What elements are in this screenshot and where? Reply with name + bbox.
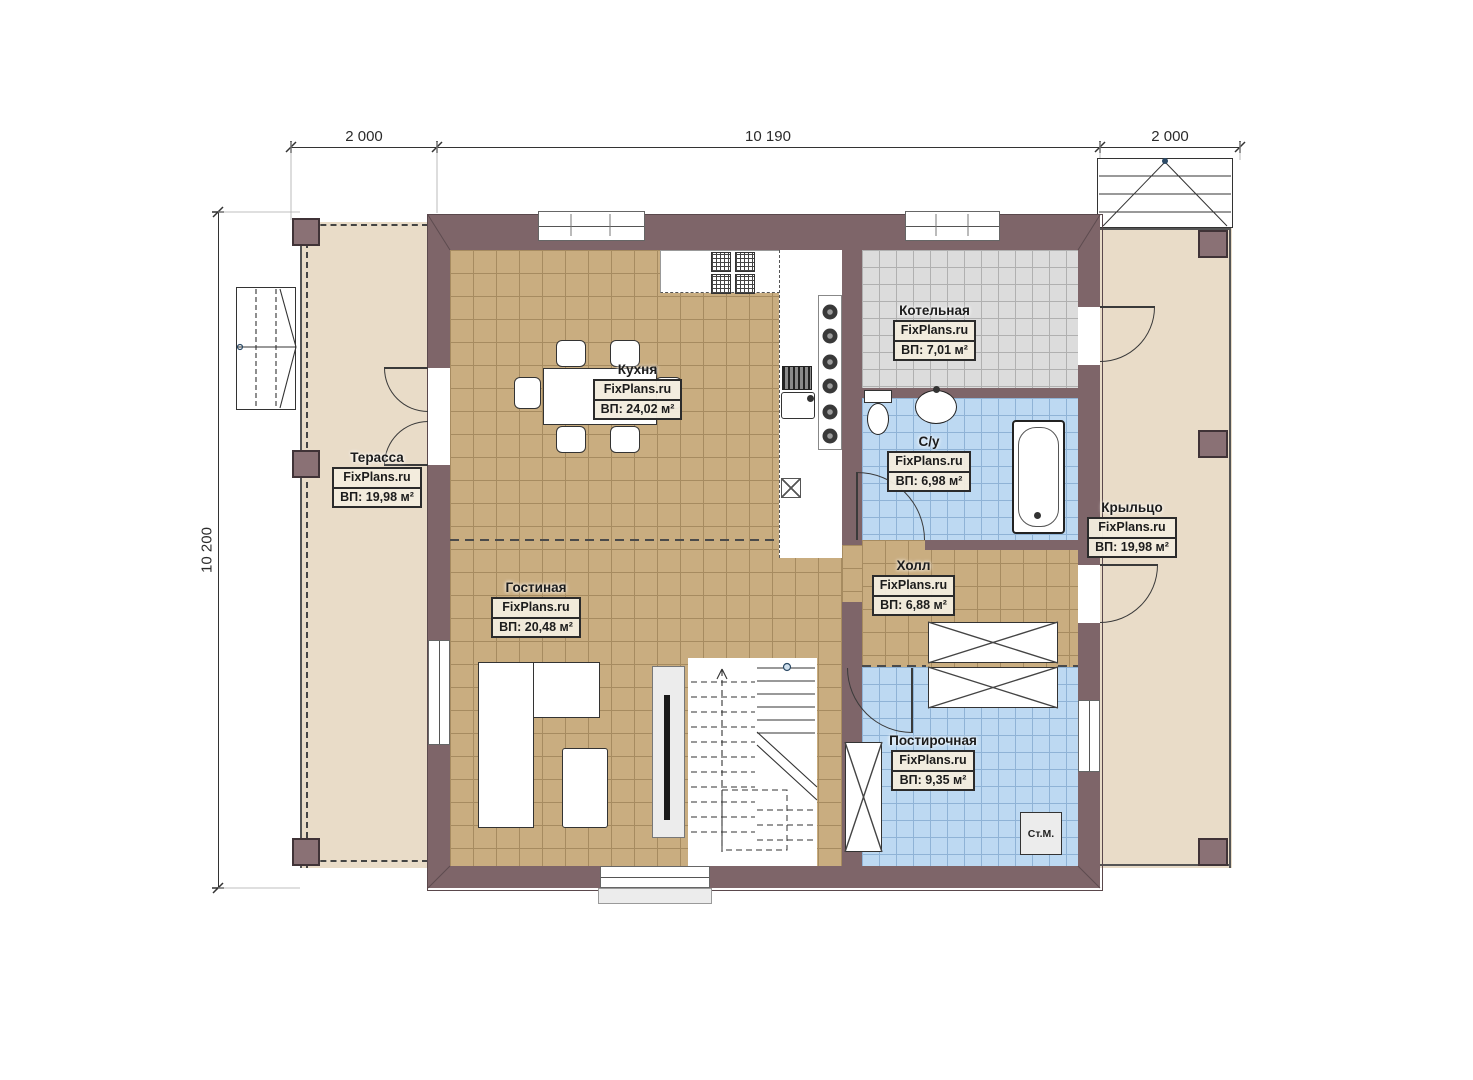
washing-machine-label: Ст.М. — [1021, 813, 1061, 854]
watermark: FixPlans.ru — [493, 599, 579, 619]
wall-bath-hall — [925, 540, 1078, 550]
stove-burner — [735, 252, 755, 272]
room-name: С/у — [883, 434, 975, 449]
stove-burner — [735, 274, 755, 294]
watermark: FixPlans.ru — [893, 752, 972, 772]
watermark: FixPlans.ru — [1089, 519, 1175, 539]
window-stairs-bottom — [600, 866, 710, 888]
hall-opening-floor — [842, 545, 862, 602]
washing-machine: Ст.М. — [1020, 812, 1062, 855]
room-label-laundry: Постирочная FixPlans.ruВП: 9,35 м² — [883, 733, 983, 791]
watermark: FixPlans.ru — [889, 453, 968, 473]
porch-stairs — [1097, 158, 1233, 228]
dimension-top-2: 10 190 — [745, 128, 791, 145]
watermark: FixPlans.ru — [895, 322, 974, 342]
room-label-living: Гостиная FixPlans.ruВП: 20,48 м² — [486, 580, 586, 638]
room-name: Гостиная — [486, 580, 586, 595]
room-area: ВП: 20,48 м² — [493, 619, 579, 637]
room-area: ВП: 7,01 м² — [895, 342, 974, 360]
room-area: ВП: 6,98 м² — [889, 473, 968, 491]
column-post — [292, 838, 320, 866]
column-post — [1198, 230, 1228, 258]
dining-chair — [556, 340, 586, 367]
wall-left — [428, 250, 450, 866]
dimension-line-top — [291, 147, 1240, 148]
bathroom-sink — [915, 390, 957, 424]
dimension-top-3: 2 000 — [1151, 128, 1189, 145]
room-name: Кухня — [590, 362, 685, 377]
room-name: Терасса — [327, 450, 427, 465]
room-area: ВП: 19,98 м² — [1089, 539, 1175, 557]
door-gap-terrace — [428, 368, 450, 465]
dimension-left: 10 200 — [199, 527, 216, 573]
watermark: FixPlans.ru — [874, 577, 953, 597]
column-post — [1198, 430, 1228, 458]
toilet-bowl — [867, 403, 889, 435]
dining-chair — [556, 426, 586, 453]
room-area: ВП: 19,98 м² — [334, 489, 420, 507]
door-gap-boiler-porch — [1078, 307, 1100, 365]
stove-burner — [711, 252, 731, 272]
stove-burner — [711, 274, 731, 294]
room-area: ВП: 24,02 м² — [595, 401, 681, 419]
room-label-terrace: Терасса FixPlans.ruВП: 19,98 м² — [327, 450, 427, 508]
kitchen-appliance — [782, 366, 812, 390]
window-kitchen-top — [538, 211, 645, 241]
window-boiler-top — [905, 211, 1000, 241]
wall-bottom — [428, 866, 1100, 888]
dining-chair — [610, 426, 640, 453]
room-name: Холл — [866, 558, 961, 573]
floor-plan: Ст.М. 2 000 10 190 2 000 10 200 Терасса … — [0, 0, 1473, 1080]
room-label-bathroom: С/у FixPlans.ruВП: 6,98 м² — [883, 434, 975, 492]
bottom-step — [598, 888, 712, 904]
room-label-kitchen: Кухня FixPlans.ruВП: 24,02 м² — [590, 362, 685, 420]
room-label-hall: Холл FixPlans.ruВП: 6,88 м² — [866, 558, 961, 616]
kitchen-cabinet — [781, 478, 801, 498]
watermark: FixPlans.ru — [334, 469, 420, 489]
room-area: ВП: 9,35 м² — [893, 772, 972, 790]
column-post — [1198, 838, 1228, 866]
wall-boiler-bath — [862, 388, 1078, 398]
column-post — [292, 450, 320, 478]
laundry-wardrobe — [845, 742, 882, 852]
room-area: ВП: 6,88 м² — [874, 597, 953, 615]
room-label-boiler: Котельная FixPlans.ruВП: 7,01 м² — [887, 303, 982, 361]
terrace-floor — [300, 222, 428, 868]
door-gap-hall-porch — [1078, 565, 1100, 623]
column-post — [292, 218, 320, 246]
kitchen-faucet — [807, 395, 814, 402]
staircase — [688, 658, 817, 866]
window-laundry-right — [1078, 700, 1100, 772]
room-label-porch: Крыльцо FixPlans.ruВП: 19,98 м² — [1082, 500, 1182, 558]
sofa-section-vertical — [478, 662, 534, 828]
kitchen-hob-strip — [818, 295, 842, 450]
porch-edge — [1229, 228, 1231, 868]
dining-chair — [514, 377, 541, 409]
sink-faucet — [933, 386, 940, 393]
terrace-railing — [306, 222, 309, 868]
hall-wardrobe-2 — [928, 667, 1058, 708]
dimension-top-1: 2 000 — [345, 128, 383, 145]
terrace-edge — [300, 222, 302, 868]
room-name: Крыльцо — [1082, 500, 1182, 515]
hall-wardrobe-1 — [928, 622, 1058, 663]
room-name: Котельная — [887, 303, 982, 318]
room-name: Постирочная — [883, 733, 983, 748]
watermark: FixPlans.ru — [595, 381, 681, 401]
bathtub-drain — [1034, 512, 1041, 519]
coffee-table — [562, 748, 608, 828]
tv-screen — [664, 695, 670, 820]
toilet-tank — [864, 390, 892, 403]
terrace-stairs — [236, 287, 296, 410]
window-living-left — [428, 640, 450, 745]
dimension-line-left — [218, 212, 219, 888]
